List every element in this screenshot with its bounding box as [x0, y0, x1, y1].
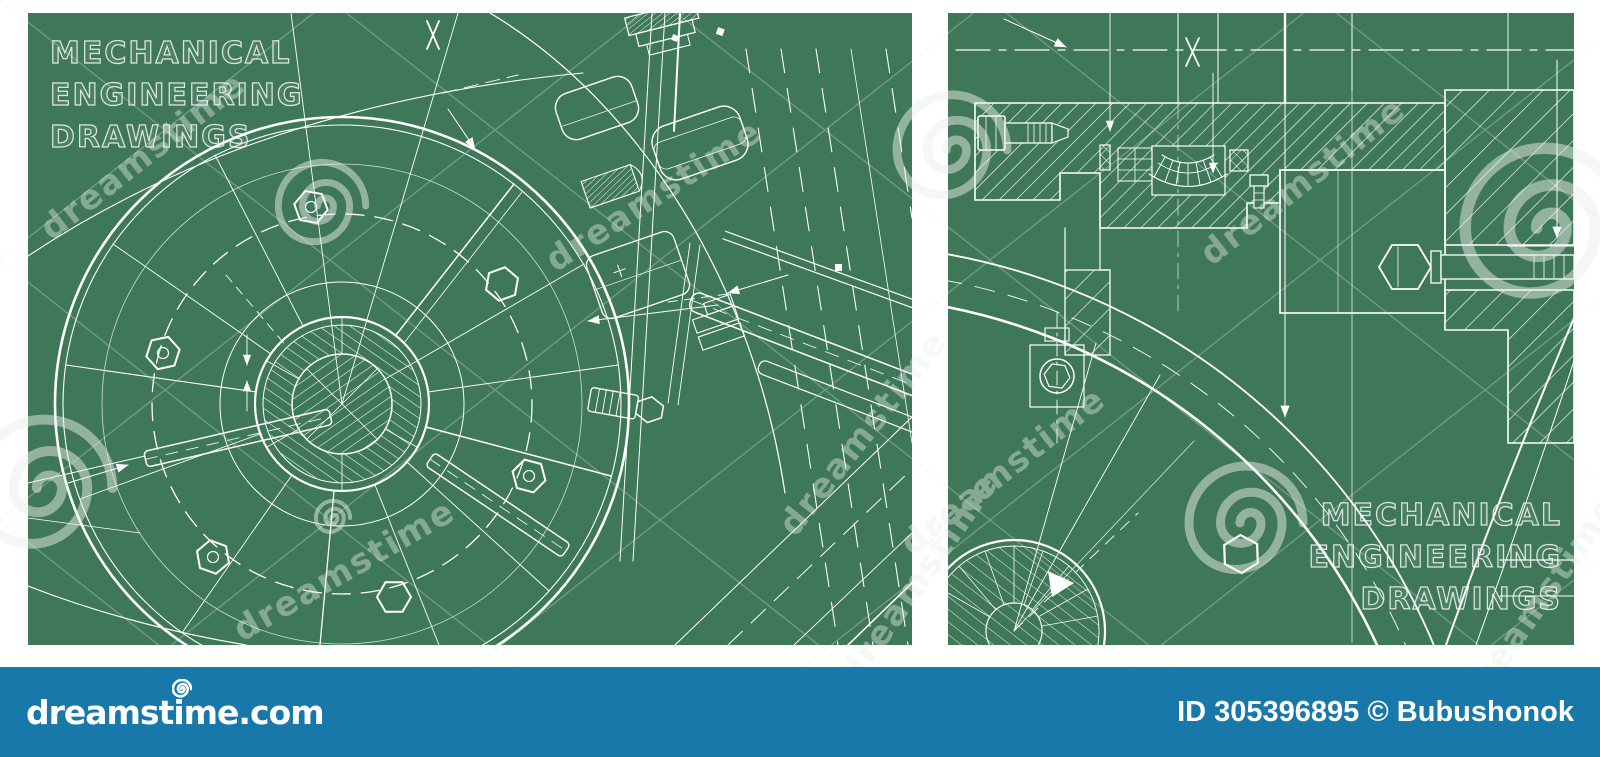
drill-stack	[625, 13, 705, 59]
sleeve-part	[647, 102, 752, 185]
dashed-diagonals	[746, 49, 912, 645]
title-line: MECHANICAL	[1309, 495, 1562, 537]
right-blueprint-panel: MECHANICAL ENGINEERING DRAWINGS	[948, 13, 1574, 645]
section-mark	[427, 21, 439, 49]
marker-square	[835, 264, 842, 271]
image-credit-text: ID 305396895 © Bubushonok	[1177, 696, 1574, 729]
right-panel-title: MECHANICAL ENGINEERING DRAWINGS	[1309, 495, 1562, 621]
stock-site-footer-bar: dreamstime.com ID 305396895 © Bubushonok	[0, 667, 1600, 757]
title-line: ENGINEERING	[50, 75, 303, 117]
bolt-hexagon	[509, 457, 549, 494]
dreamstime-logo[interactable]: dreamstime.com	[26, 693, 324, 732]
left-blueprint-panel: MECHANICAL ENGINEERING DRAWINGS	[28, 13, 912, 645]
housing-window	[1280, 170, 1445, 313]
threaded-stud	[587, 386, 664, 424]
long-bar	[756, 359, 912, 444]
seal-crosshatch	[1100, 145, 1110, 170]
title-line: MECHANICAL	[50, 33, 303, 75]
long-bar	[687, 291, 912, 399]
volute-bolt-hexagon	[1217, 531, 1266, 578]
bolt-hexagon	[143, 335, 182, 371]
logo-spiral-icon	[172, 679, 192, 699]
section-mark	[1186, 38, 1199, 66]
title-line: ENGINEERING	[1309, 537, 1562, 579]
title-line: DRAWINGS	[50, 117, 303, 159]
stock-image-page: MECHANICAL ENGINEERING DRAWINGS	[0, 0, 1600, 757]
corner-diagonals	[675, 417, 912, 645]
bolt-hexagon	[481, 264, 523, 303]
knurled-cylinder	[581, 162, 646, 208]
step-block-hatch	[1065, 270, 1110, 355]
long-bar	[723, 231, 912, 310]
sleeve-part	[584, 229, 692, 321]
corner-block-hatch	[1445, 90, 1574, 245]
small-bolt-head	[1250, 175, 1268, 186]
marker-square	[716, 27, 725, 36]
impeller-view	[948, 343, 1194, 645]
title-line: DRAWINGS	[1309, 579, 1562, 621]
seal-crosshatch	[1230, 150, 1248, 171]
left-panel-title: MECHANICAL ENGINEERING DRAWINGS	[50, 33, 303, 159]
right-bolt	[1379, 245, 1574, 289]
construction-arc	[28, 586, 246, 645]
sleeve-part	[551, 72, 642, 143]
key-bar-right	[426, 453, 571, 558]
